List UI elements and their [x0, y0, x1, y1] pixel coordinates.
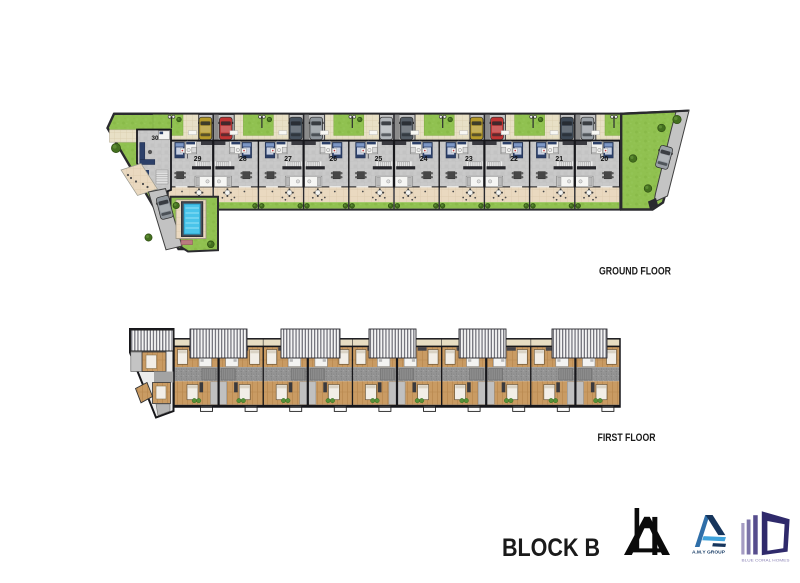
svg-text:22: 22 [510, 156, 518, 163]
svg-text:FIRST FLOOR: FIRST FLOOR [598, 432, 656, 444]
svg-text:24: 24 [420, 156, 428, 163]
svg-text:A.M.Y GROUP: A.M.Y GROUP [692, 550, 725, 555]
svg-text:GROUND FLOOR: GROUND FLOOR [599, 266, 671, 278]
svg-text:20: 20 [601, 156, 609, 163]
svg-text:26: 26 [329, 156, 337, 163]
svg-text:28: 28 [239, 156, 247, 163]
svg-text:BLUE CORAL HOMES: BLUE CORAL HOMES [742, 559, 791, 563]
svg-text:BLOCK B: BLOCK B [502, 535, 600, 562]
svg-text:30: 30 [152, 135, 159, 142]
